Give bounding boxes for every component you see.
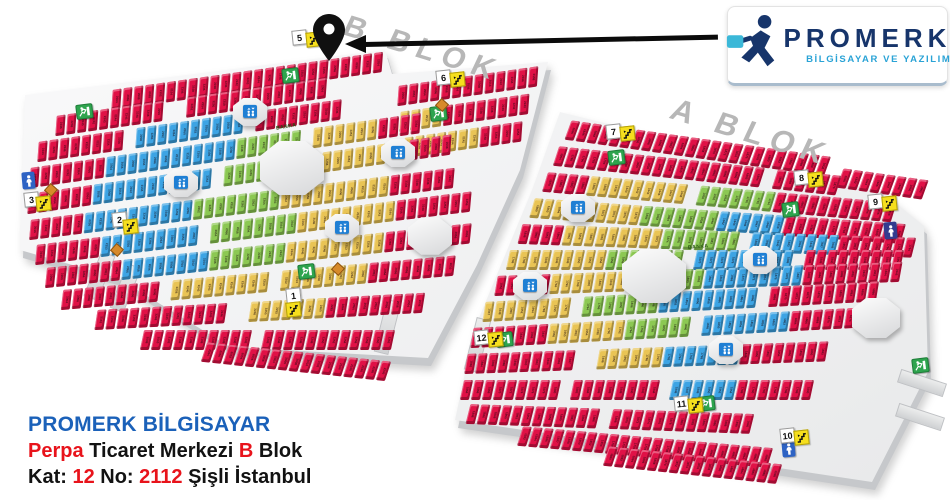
stall-number: 2008 [163,155,166,162]
stall-number: 2262 [386,337,390,344]
stall-number: 1888 [501,359,505,366]
stall-number: 1860 [733,171,738,178]
stall-block: 2250 [428,195,439,216]
stall-number: 1856 [695,297,699,304]
stall-block: 2050 [89,262,100,283]
stall-number: 2236 [152,288,156,295]
stall-number: 2104 [196,151,199,158]
stall-number: 1952 [786,223,791,230]
atrium-octagon-surface [852,298,900,339]
stall-number: 1846 [608,279,612,286]
stall-number: 2052 [98,165,101,172]
stall-number: 1884 [666,214,671,221]
stall-number: 1846 [481,411,486,418]
stall-number: 2243 [265,337,269,344]
stall-number: 1794 [841,226,846,233]
stall-number: 2238 [213,82,216,89]
stall-number: 1850 [716,322,720,329]
stall-number: 2250 [263,308,267,315]
stall-number: 2010 [425,115,428,122]
stall-block: 2058 [232,220,243,241]
stall-number: 1850 [678,166,683,173]
stall-number: 1882 [806,272,810,279]
stall-number: 1850 [719,450,724,457]
stall-number: 1792 [617,327,621,334]
stall-block: 2054 [201,118,211,140]
stall-block: 2006 [149,150,159,172]
stall-number: 2102 [166,337,170,344]
stall-number: 2254 [454,200,458,207]
stall-number: 1792 [591,157,596,164]
stall-number: 1852 [587,257,591,264]
stall-number: 2242 [512,102,515,109]
stall-number: 2236 [235,254,239,261]
stall-number: 1882 [655,213,660,220]
stall-number: 2106 [188,337,192,344]
elevator-pad [561,194,595,222]
stall-number: 1944 [732,219,737,226]
stall-block: 2108 [321,101,331,123]
stall-number: 1876 [730,257,734,264]
stall-number: 2264 [262,198,266,205]
stall-block: 2260 [56,266,67,287]
stall-number: 2058 [131,160,134,167]
stall-number: 1858 [722,170,727,177]
stall-number: 2054 [287,90,290,97]
stall-number: 2010 [304,359,309,366]
stall-number: 1866 [718,275,722,282]
stall-block: 1862 [816,341,829,361]
stall-number: 1876 [530,387,534,394]
stall-number: 2058 [309,87,312,94]
stall-block: 2262 [157,124,167,146]
stall-number: 2004 [147,264,151,271]
stall-number: 2058 [464,230,468,237]
stall-number: 1790 [552,305,556,312]
stall-block: 2258 [373,232,384,253]
stall-number: 2252 [104,243,108,250]
stall-number: 2258 [377,239,381,246]
stall-block: 2242 [444,168,455,189]
stall-number: 1848 [708,449,713,456]
stall-number: 1854 [598,257,602,264]
stall-number: 1860 [717,296,721,303]
stall-block: 2010 [444,256,455,277]
stall-number: 1884 [860,289,864,296]
stall-block: 2246 [59,137,69,159]
stall-number: 1938 [818,257,822,264]
stall-number: 2050 [368,152,371,159]
stall-number: 2104 [140,184,143,191]
stall-number: 1878 [784,272,788,279]
stall-number: 2248 [252,308,256,315]
stall-number: 1836 [597,279,601,286]
stall-number: 1952 [573,329,577,336]
stall-number: 1876 [695,462,700,469]
stall-number: 2004 [272,356,277,363]
stall-number: 1868 [652,458,657,465]
stall-number: 1862 [696,276,700,283]
elevator-icon [719,343,733,356]
stall-number: 2254 [360,128,363,135]
stall-block: 2248 [323,125,333,147]
stall-number: 1848 [705,322,709,329]
stall-block: 2106 [308,210,319,231]
stall-number: 1860 [809,349,813,356]
stall-number: 1874 [733,150,738,157]
stall-number: 2106 [151,183,154,190]
stall-number: 2052 [192,232,196,239]
stall-number: 1944 [651,387,655,394]
stall-block: 2264 [168,122,178,144]
stall-block: 2252 [193,199,204,220]
stall-number: 2240 [256,252,260,259]
stall-number: 2008 [144,337,148,344]
stall-block: 2245 [297,240,308,261]
stall-number: 2262 [347,155,350,162]
stall-block: 2256 [362,234,373,255]
stall-number: 2104 [382,183,386,190]
stall-number: 2108 [218,148,221,155]
stall-block: 2056 [212,116,222,138]
stall-number: 2102 [499,78,502,85]
stall-number: 1878 [633,212,638,219]
address-line-building: Perpa Ticaret Merkezi B Blok [28,438,311,464]
stall-number: 1952 [622,355,626,362]
stall-number: 1790 [819,225,824,232]
stall-number: 2245 [208,311,212,318]
stall-block: 2242 [508,95,518,117]
stall-number: 2242 [366,211,370,218]
stall-block: 2240 [497,97,507,119]
stall-block: 2246 [68,240,79,261]
stall-number: 1952 [852,242,857,249]
address-text: Blok [253,440,302,462]
stall-number: 2106 [213,257,217,264]
address-line-floor: Kat: 12 No: 2112 Şişli İstanbul [28,464,311,490]
stall-block: 2056 [122,259,133,280]
stall-number: 2006 [283,357,288,364]
stall-block: 2106 [204,142,214,164]
stall-number: 2240 [501,104,504,111]
stall-block: 2252 [92,133,102,155]
stall-number: 2050 [87,166,90,173]
stall-block: 2254 [450,193,461,214]
stall-number: 2252 [274,307,278,314]
stall-block: 2050 [365,145,375,167]
stall-number: 1858 [646,138,651,145]
stall-number: 1944 [533,434,538,441]
stall-block: 2262 [155,229,166,250]
stall-number: 1858 [547,413,552,420]
stall-number: 1850 [576,257,580,264]
stall-number: 2058 [444,86,447,93]
stall-number: 1876 [622,211,627,218]
stall-number: 1846 [697,448,702,455]
stall-number: 1947 [540,331,544,338]
stall-number: 1954 [584,329,588,336]
elevator-icon [571,201,585,214]
stall-block: 2008 [264,216,275,237]
stall-block: 2058 [400,259,411,280]
stall-number: 2056 [433,87,436,94]
stall-number: 1874 [805,292,809,299]
stall-number: 1858 [763,454,768,461]
floorplan-canvas: 2004200620082010210221042106210822362238… [0,0,950,500]
stall-number: 1942 [721,218,726,225]
stall-number: 1796 [510,257,514,264]
stall-block: 2236 [476,100,486,122]
stall-number: 2260 [55,171,58,178]
stall-number: 1946 [894,269,898,276]
stall-number: 1954 [722,194,727,201]
stall-number: 2006 [338,188,342,195]
stall-number: 1938 [850,270,854,277]
stall-number: 2236 [59,122,62,129]
stall-block: 2264 [73,160,83,182]
stall-number: 2056 [120,162,123,169]
stall-block: 2250 [258,272,269,293]
stall-number: 1800 [661,325,665,332]
stall-number: 1870 [826,316,830,323]
stall-number: 1878 [547,179,552,186]
stall-number: 1792 [830,226,835,233]
stall-number: 2050 [273,196,277,203]
stall-block: 2004 [243,218,254,239]
stall-number: 1800 [586,279,590,286]
stall-number: 1948 [764,221,769,228]
stall-block: 2006 [413,293,425,314]
stall-number: 2102 [291,113,294,120]
stall-number: 2006 [153,157,156,164]
stall-number: 2056 [224,228,228,235]
stall-number: 1868 [486,387,490,394]
stall-block: 2262 [67,265,78,286]
atrium-octagon [260,141,324,195]
stall-block: 2245 [149,204,160,225]
stall-block: 2256 [114,130,124,152]
stall-number: 1798 [650,325,654,332]
stall-number: 1864 [793,318,797,325]
stall-number: 2238 [174,287,178,294]
stall-number: 2102 [98,316,102,323]
stall-number: 1948 [497,308,501,315]
stall-number: 1796 [564,280,568,287]
stall-number: 2256 [333,65,336,72]
exit-sign-icon [911,357,930,374]
stall-block: 2236 [55,115,65,137]
stall-block: 2250 [81,134,91,156]
stall-number: 1854 [700,168,705,175]
stall-number: 2245 [287,337,291,344]
stall-number: 1868 [788,177,793,184]
stall-number: 1886 [490,360,494,367]
stall-number: 1940 [629,387,633,394]
stall-number: 1942 [635,187,640,194]
stall-block: 2238 [66,113,76,135]
stall-number: 1950 [562,330,566,337]
stall-number: 2236 [335,106,338,113]
stall-number: 1888 [839,271,843,278]
stall-number: 1848 [522,231,527,238]
stall-number: 1882 [468,360,472,367]
stall-number: 1944 [545,358,549,365]
stall-number: 1946 [743,220,748,227]
stall-number: 2050 [181,233,185,240]
stall-number: 1864 [580,415,585,422]
stall-number: 1874 [685,461,690,468]
stall-block: 2106 [389,174,400,195]
stall-block: 2106 [209,250,220,271]
stall-number: 1944 [864,178,869,185]
elevator-icon [753,253,767,266]
stall-block: 2236 [411,172,422,193]
stall-number: 1882 [690,418,695,425]
stall-number: 1950 [611,355,615,362]
stall-number: 2260 [388,238,392,245]
stall-number: 1846 [821,203,826,210]
stall-number: 1864 [464,387,468,394]
stall-block: 2240 [247,136,257,158]
stall-number: 1952 [918,186,923,193]
stall-number: 2252 [349,129,352,136]
stall-number: 1800 [675,446,680,453]
stall-number: 2244 [142,212,146,219]
stall-block: 2244 [286,242,297,263]
stall-block: 2104 [193,144,203,166]
stall-number: 1866 [750,294,754,301]
stall-number: 1796 [688,353,692,360]
stall-number: 1950 [706,387,710,394]
stall-number: 2104 [302,111,305,118]
stall-number: 2004 [406,300,410,307]
stall-number: 1862 [744,173,749,180]
stall-number: 1798 [794,387,798,394]
stall-number: 2245 [267,74,270,81]
stall-number: 1866 [641,457,646,464]
stall-number: 2250 [338,131,341,138]
stall-number: 2052 [284,195,288,202]
stall-block: 2058 [461,223,472,244]
stall-block: 2102 [368,177,379,198]
stall-number: 1944 [646,188,651,195]
stall-number: 2240 [164,313,168,320]
stall-number: 2010 [118,188,121,195]
stall-number: 2108 [324,108,327,115]
stall-number: 2238 [370,366,375,373]
stall-number: 1788 [874,243,879,250]
stall-number: 2006 [426,264,430,271]
stall-number: 2106 [393,182,397,189]
stall-block: 2244 [234,163,244,185]
stall-number: 2236 [87,219,91,226]
stall-number: 1882 [709,237,714,244]
stall-block: 2054 [284,82,294,104]
stall-block: 2250 [182,200,193,221]
stall-number: 2240 [232,337,236,344]
stall-number: 2252 [505,130,508,137]
stall-number: 2258 [381,125,384,132]
stall-number: 2008 [107,189,110,196]
atrium-octagon [852,298,900,339]
stall-number: 1850 [533,231,538,238]
stall-block: 2244 [138,205,149,226]
stall-block: 2004 [143,257,154,278]
stall-number: 2102 [158,90,161,97]
stall-number: 1868 [632,235,637,242]
stall-number: 2256 [211,100,214,107]
stall-number: 2250 [186,207,190,214]
stall-number: 1790 [750,387,754,394]
address-text: No: [95,466,139,488]
stall-number: 2246 [240,281,244,288]
stall-number: 2102 [185,152,188,159]
stall-number: 1800 [532,257,536,264]
stall-number: 2050 [92,269,96,276]
stall-number: 2248 [146,110,149,117]
stall-block: 2006 [430,136,440,158]
stall-number: 2238 [153,313,157,320]
stall-block: 2004 [61,289,72,310]
stall-number: 2058 [226,122,229,129]
stall-number: 2102 [191,259,195,266]
stall-number: 2254 [207,204,211,211]
stall-number: 1938 [699,216,704,223]
stall-number: 1788 [569,154,574,161]
stall-number: 1938 [512,359,516,366]
stall-block: 2260 [389,116,399,138]
stall-number: 1944 [518,332,522,339]
stall-number: 1798 [575,280,579,287]
stall-block: 2056 [116,154,126,176]
stall-block: 2108 [214,141,224,163]
stall-block: 2058 [306,79,316,101]
stall-block: 2260 [51,163,61,185]
stall-number: 1788 [808,224,813,231]
stall-number: 2108 [531,73,534,80]
stall-number: 2250 [157,108,160,115]
stall-number: 2102 [129,186,132,193]
stall-number: 2256 [218,203,222,210]
stall-number: 2240 [81,119,84,126]
stall-number: 2248 [309,337,313,344]
elevator-icon [523,279,537,292]
stall-number: 2264 [376,59,379,66]
stall-block: 2104 [136,177,146,199]
stall-number: 1872 [722,149,727,156]
stall-number: 2006 [434,143,437,150]
stall-number: 1880 [558,180,563,187]
stall-number: 2254 [516,128,519,135]
stall-number: 1848 [565,257,569,264]
stall-block: 2054 [111,260,122,281]
stall-number: 1950 [907,184,912,191]
stall-number: 2248 [175,208,179,215]
stall-number: 1870 [663,459,668,466]
stall-number: 2050 [351,303,355,310]
stall-number: 1940 [710,217,715,224]
stall-block: 2245 [48,139,58,161]
stall-number: 1788 [733,195,738,202]
stall-block: 2102 [286,213,297,234]
stall-block: 2248 [79,238,90,259]
stall-number: 1884 [817,271,821,278]
stall-block: 2242 [363,204,374,225]
stall-number: 1856 [787,349,791,356]
stall-number: 1850 [503,412,508,419]
stall-number: 1950 [577,438,582,445]
stall-number: 1870 [643,235,648,242]
